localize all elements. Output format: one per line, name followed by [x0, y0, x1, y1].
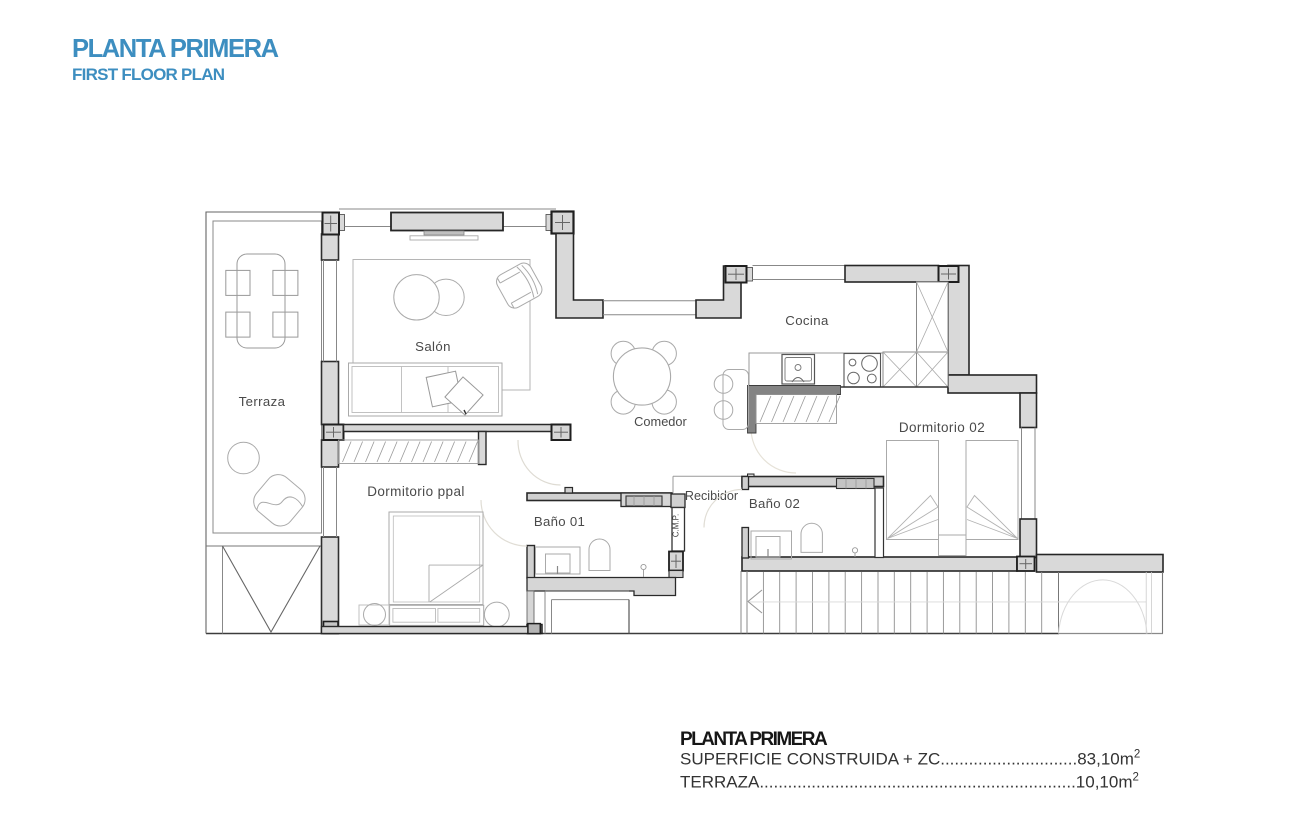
svg-text:FIRST FLOOR PLAN: FIRST FLOOR PLAN [72, 65, 225, 84]
svg-text:Baño 01: Baño 01 [534, 514, 585, 529]
svg-text:TERRAZA.......................: TERRAZA.................................… [680, 772, 1139, 792]
svg-text:Dormitorio 02: Dormitorio 02 [899, 420, 985, 435]
svg-text:PLANTA PRIMERA: PLANTA PRIMERA [72, 35, 279, 63]
svg-text:Comedor: Comedor [634, 414, 687, 429]
svg-text:Dormitorio ppal: Dormitorio ppal [367, 484, 465, 499]
svg-text:Cocina: Cocina [785, 313, 829, 328]
svg-text:Salón: Salón [415, 339, 451, 354]
svg-text:C.M.P.: C.M.P. [672, 514, 681, 537]
svg-text:SUPERFICIE CONSTRUIDA + ZC....: SUPERFICIE CONSTRUIDA + ZC..............… [680, 749, 1140, 769]
svg-text:Baño 02: Baño 02 [749, 496, 800, 511]
svg-text:Terraza: Terraza [239, 394, 286, 409]
svg-text:PLANTA PRIMERA: PLANTA PRIMERA [680, 729, 828, 750]
